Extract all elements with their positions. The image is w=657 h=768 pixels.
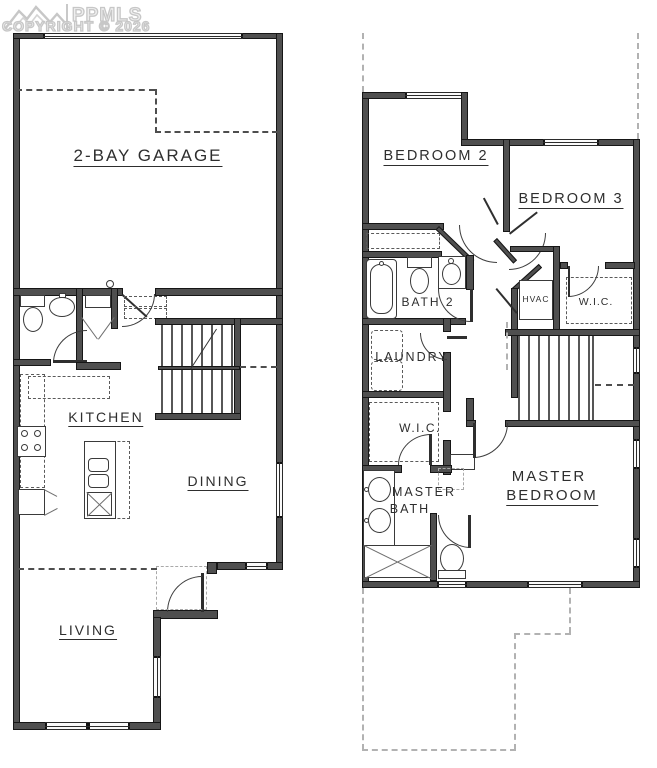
water-closet-door-leaf bbox=[468, 515, 471, 548]
stair-dashed-line bbox=[240, 366, 277, 368]
closet-shelf-icon bbox=[85, 295, 111, 308]
roof-outline-dashed bbox=[514, 633, 571, 635]
faucet-icon bbox=[379, 261, 384, 266]
island-sink-icon bbox=[88, 474, 109, 488]
powder-door-arc bbox=[53, 330, 87, 363]
stairs bbox=[518, 336, 593, 420]
window bbox=[437, 581, 467, 588]
wall bbox=[605, 262, 635, 269]
window bbox=[276, 462, 283, 518]
toilet-icon bbox=[20, 295, 45, 307]
wall bbox=[553, 246, 560, 336]
faucet-icon bbox=[59, 293, 66, 298]
closet-rod-dashed bbox=[366, 233, 440, 249]
room-label-master-bath: BATH bbox=[390, 502, 430, 516]
wall bbox=[111, 288, 118, 329]
vanity-sink-icon bbox=[442, 263, 461, 285]
room-label-laundry: LAUNDRY bbox=[375, 350, 449, 364]
window bbox=[633, 347, 640, 374]
wall bbox=[155, 413, 241, 420]
toilet-icon bbox=[440, 544, 464, 573]
window bbox=[633, 538, 640, 568]
wall bbox=[13, 359, 51, 366]
entry-tile-dashed bbox=[156, 566, 207, 610]
stair-stringer bbox=[592, 336, 594, 420]
room-label-bath2: BATH 2 bbox=[401, 295, 454, 309]
roof-outline-dashed bbox=[514, 633, 516, 750]
window bbox=[245, 562, 268, 570]
two-story-floor-plan: PPMLS COPYRIGHT © 2026 bbox=[0, 0, 657, 768]
window bbox=[88, 722, 130, 730]
window bbox=[543, 139, 599, 146]
room-label-bedroom2: BEDROOM 2 bbox=[383, 148, 488, 164]
bathtub-icon bbox=[370, 264, 393, 314]
room-label-garage: 2-BAY GARAGE bbox=[73, 146, 222, 166]
room-label-master-bedroom: MASTER bbox=[512, 468, 587, 485]
wall bbox=[13, 33, 20, 730]
wall bbox=[511, 288, 518, 398]
kitchen-counter-dashed bbox=[28, 376, 110, 399]
overhead-storage-dashed bbox=[124, 296, 167, 307]
refrigerator-icon bbox=[18, 489, 45, 515]
room-label-hvac: HVAC bbox=[523, 294, 550, 304]
bedroom3-door-leaf bbox=[509, 211, 538, 234]
master-bedroom-door-arc bbox=[473, 423, 508, 458]
window bbox=[405, 92, 463, 99]
pedestal-sink-icon bbox=[49, 297, 75, 317]
wall bbox=[505, 329, 640, 336]
wall bbox=[461, 92, 468, 146]
wall bbox=[430, 513, 437, 581]
burner-icon bbox=[34, 444, 41, 451]
roof-outline-dashed bbox=[637, 33, 639, 139]
wall bbox=[560, 262, 568, 269]
refrigerator-icon bbox=[43, 489, 57, 497]
wall bbox=[362, 223, 444, 230]
faucet-icon bbox=[364, 487, 369, 492]
room-label-living: LIVING bbox=[59, 622, 117, 638]
room-label-wic-hall: W.I.C. bbox=[579, 296, 614, 308]
room-label-kitchen: KITCHEN bbox=[68, 409, 143, 425]
window bbox=[527, 581, 583, 588]
wall bbox=[155, 288, 283, 296]
roof-outline-dashed bbox=[362, 33, 364, 92]
faucet-icon bbox=[364, 518, 369, 523]
wall bbox=[510, 246, 555, 252]
window bbox=[153, 656, 161, 698]
room-label-master-bath: MASTER bbox=[392, 485, 456, 499]
garage-dashed-line bbox=[16, 89, 155, 91]
laundry-door-leaf bbox=[447, 336, 467, 339]
faucet-icon bbox=[448, 258, 454, 264]
vanity-sink-icon bbox=[368, 508, 391, 533]
toilet-icon bbox=[438, 570, 466, 579]
room-label-wic-master: W.I.C. bbox=[399, 421, 441, 435]
room-label-bedroom3: BEDROOM 3 bbox=[518, 191, 623, 207]
room-label-master-bedroom: BEDROOM bbox=[506, 487, 598, 504]
wall bbox=[155, 318, 283, 325]
toilet-icon bbox=[23, 307, 43, 332]
wall bbox=[466, 255, 474, 290]
wall bbox=[207, 562, 217, 574]
window bbox=[45, 722, 88, 730]
wall bbox=[443, 318, 451, 332]
roof-outline-dashed bbox=[569, 588, 571, 633]
garage-door bbox=[43, 33, 243, 39]
stairs-lower-run bbox=[161, 370, 234, 413]
dryer-icon bbox=[371, 361, 403, 391]
hall-dashed-line bbox=[506, 322, 508, 370]
wall bbox=[503, 139, 510, 232]
garage-dashed-line bbox=[155, 131, 278, 133]
wall bbox=[505, 420, 640, 427]
room-divider-dashed bbox=[18, 568, 157, 570]
wic-master-door-leaf bbox=[429, 434, 432, 465]
water-closet-door-arc bbox=[438, 515, 471, 548]
roof-outline-dashed bbox=[362, 749, 516, 751]
burner-icon bbox=[34, 430, 41, 437]
watermark-copyright: COPYRIGHT © 2026 bbox=[2, 18, 150, 34]
open-below-dashed bbox=[595, 384, 634, 386]
garage-dashed-line bbox=[155, 89, 157, 133]
wall bbox=[362, 391, 444, 398]
master-bedroom-door-leaf bbox=[473, 423, 476, 458]
wall bbox=[362, 581, 640, 588]
refrigerator-icon bbox=[44, 508, 58, 516]
toilet-icon bbox=[407, 257, 432, 268]
roof-outline-dashed bbox=[362, 588, 364, 750]
vanity-sink-icon bbox=[368, 477, 391, 502]
wic-door-leaf bbox=[568, 266, 570, 297]
window bbox=[633, 439, 640, 469]
doorbell-icon bbox=[106, 280, 114, 288]
bedroom2-door-leaf bbox=[483, 198, 499, 225]
burner-icon bbox=[21, 444, 28, 451]
bath2-door-leaf bbox=[470, 289, 473, 322]
room-label-dining: DINING bbox=[188, 473, 249, 489]
wall bbox=[76, 362, 121, 370]
toilet-icon bbox=[410, 268, 429, 294]
burner-icon bbox=[21, 430, 28, 437]
island-sink-icon bbox=[88, 458, 109, 472]
